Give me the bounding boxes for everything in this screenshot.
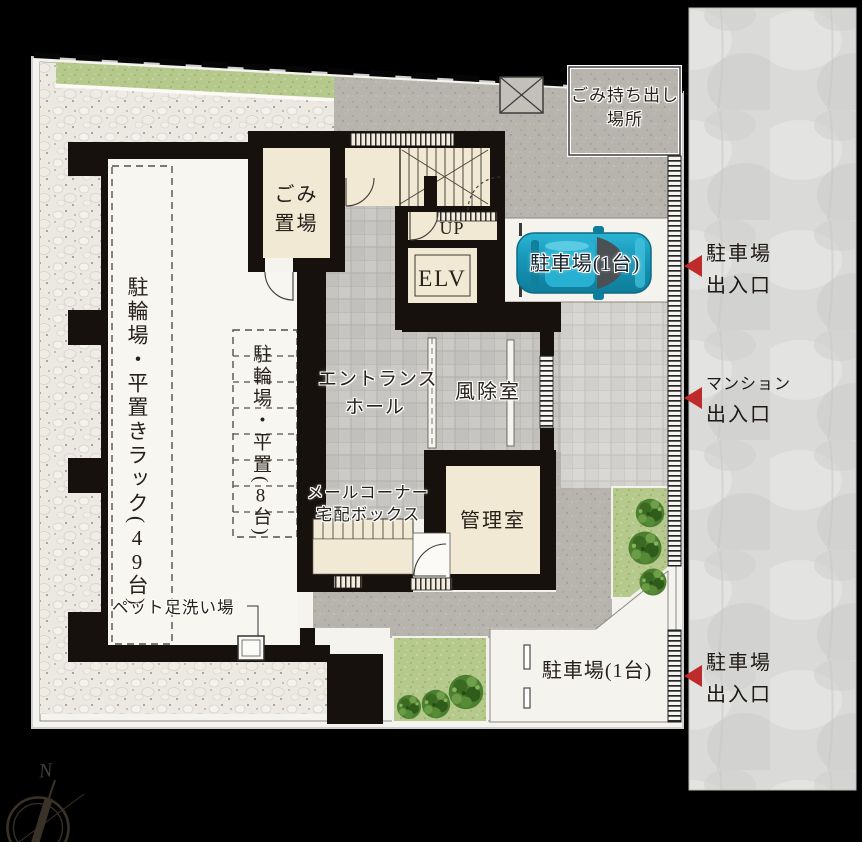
bush-icon: [629, 532, 662, 565]
window-hatch: [350, 133, 454, 146]
stairs: [400, 148, 490, 206]
manager-room: [446, 466, 540, 574]
mail-counter: [313, 519, 413, 574]
bush-icon: [422, 690, 451, 719]
fence-hatch: [668, 156, 681, 722]
stair-landing-room: [345, 148, 400, 206]
planting-bed-bottom: [393, 637, 487, 722]
bush-icon: [449, 675, 484, 710]
window-hatch: [437, 212, 497, 221]
planting-bed-right: [612, 487, 668, 598]
car-icon: [517, 226, 651, 300]
site-plan-canvas: 駐輪場・平置きラック(49台) 駐輪場・平置(8台) ごみ 置場 UP ELV …: [0, 0, 862, 842]
crosshatch-marker: [500, 77, 543, 113]
garbage-pickup-room: [569, 67, 680, 155]
compass-icon: [0, 780, 84, 842]
bush-icon: [397, 695, 421, 719]
bush-icon: [636, 499, 665, 528]
floor-plan-graphic: [0, 0, 862, 842]
street-area: [689, 8, 856, 790]
bush-icon: [640, 569, 667, 596]
garbage-room: [263, 148, 330, 258]
elevator-room: [408, 248, 477, 303]
